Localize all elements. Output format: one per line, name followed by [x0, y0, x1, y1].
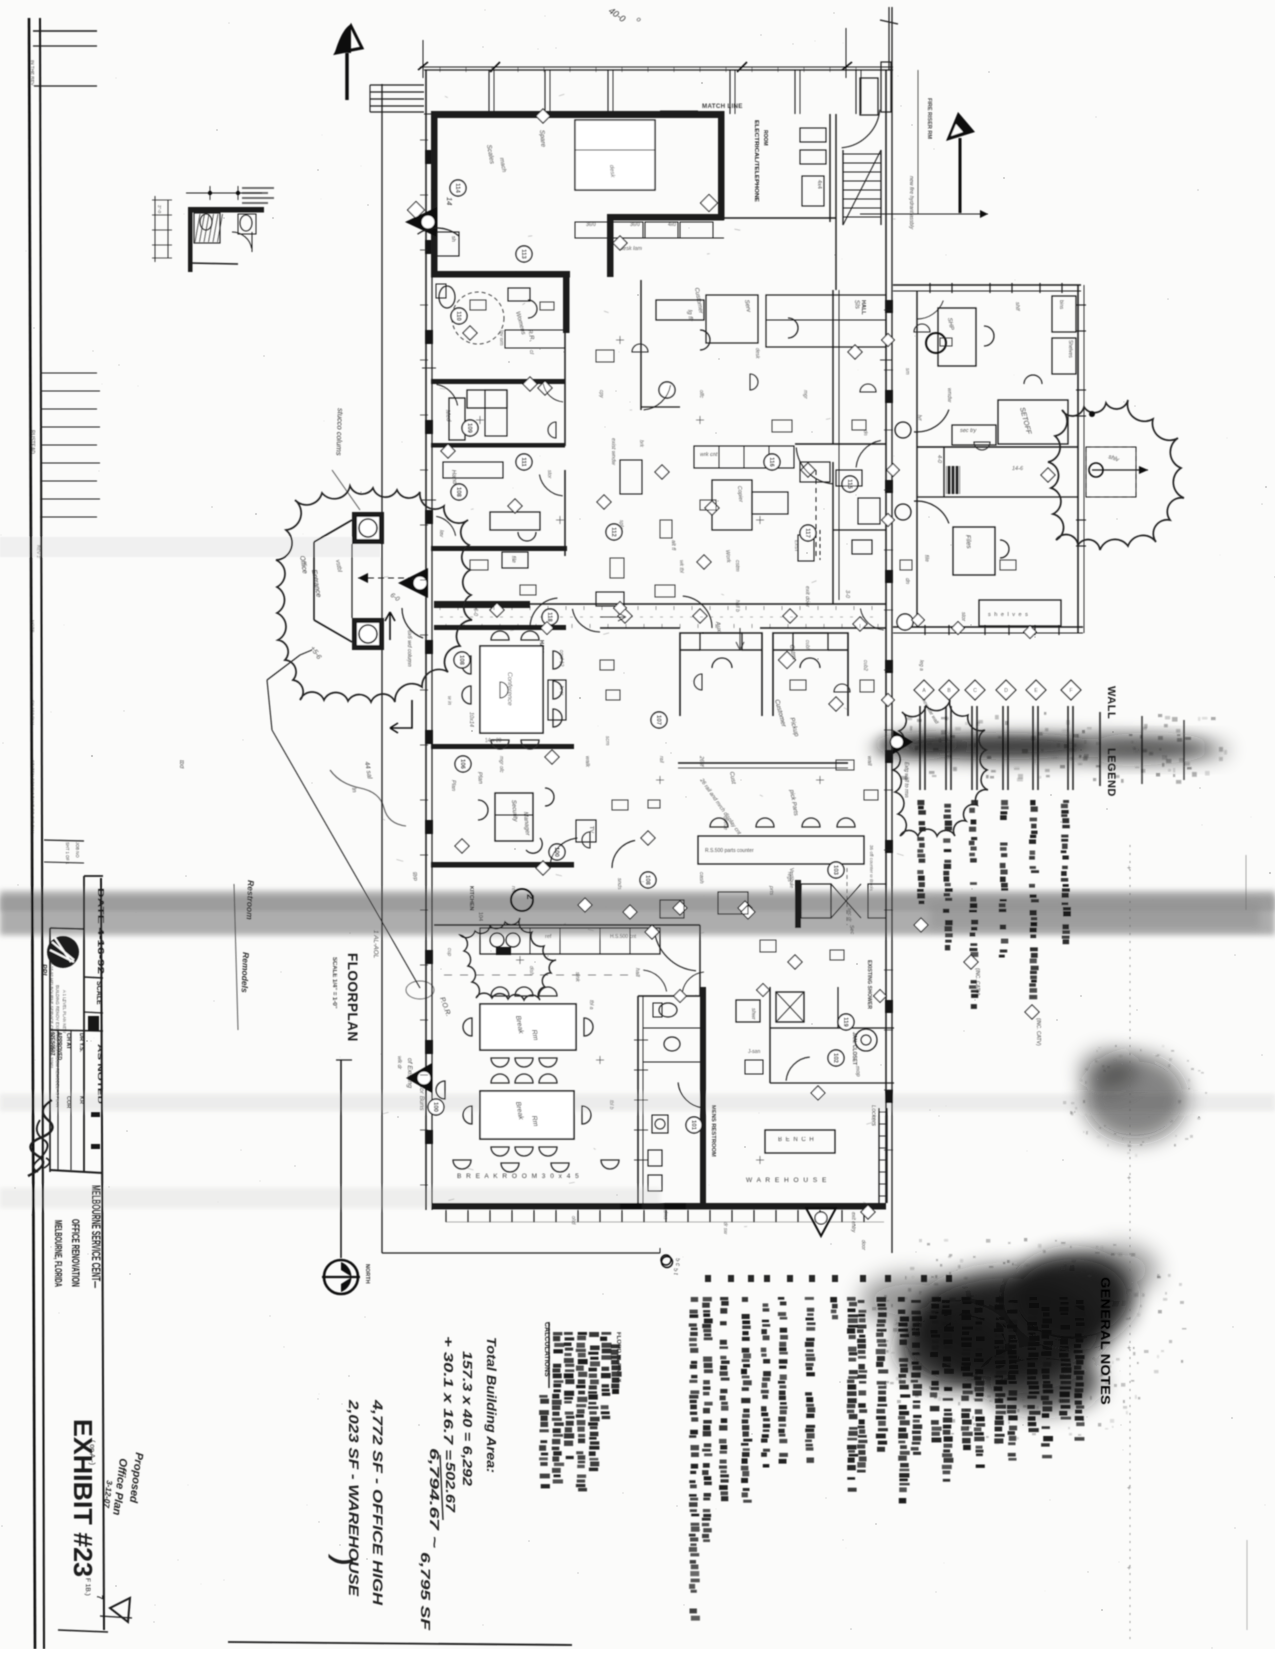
svg-text:+: +	[1127, 1175, 1131, 1182]
svg-text:MELBOURNE, FLORIDA: MELBOURNE, FLORIDA	[52, 1220, 63, 1287]
svg-text:+ 30.1 x 16.7 =: + 30.1 x 16.7 =	[441, 1336, 455, 1461]
svg-text:exit door: exit door	[804, 586, 810, 608]
svg-text:101: 101	[690, 1120, 696, 1131]
svg-text:PLAN: PLAN	[345, 1003, 360, 1042]
svg-text:new fire hydrant assbly: new fire hydrant assbly	[908, 176, 914, 229]
svg-text:115: 115	[846, 479, 852, 489]
svg-text:NOTE: NOTE	[30, 620, 35, 633]
svg-text:36/0: 36/0	[630, 222, 640, 228]
svg-text:STATEN CONSULTANT CO INC DLV: STATEN CONSULTANT CO INC DLV	[30, 760, 35, 833]
svg-text:J-san: J-san	[748, 1049, 760, 1055]
svg-text:106: 106	[459, 759, 465, 770]
svg-text:ohd: ohd	[570, 1216, 576, 1225]
svg-text:brk: brk	[638, 440, 644, 447]
svg-text:MELBOURNE SERVICE CENT—: MELBOURNE SERVICE CENT—	[89, 1185, 103, 1288]
svg-text:FIRE RISER RM: FIRE RISER RM	[926, 98, 932, 139]
svg-text:mgr ofc: mgr ofc	[498, 756, 504, 773]
svg-text:KR: KR	[78, 1096, 84, 1104]
svg-text:stor: stor	[960, 612, 966, 622]
svg-text:EXST: EXST	[794, 540, 799, 552]
svg-text:wlk dr: wlk dr	[396, 1056, 402, 1069]
svg-text:desk: desk	[608, 165, 615, 179]
svg-text:Plan: Plan	[450, 780, 456, 791]
svg-text:CK 150 DLV: CK 150 DLV	[30, 700, 35, 725]
svg-text:H.S.500 cnt: H.S.500 cnt	[610, 934, 637, 940]
svg-text:dn: dn	[904, 578, 910, 584]
svg-text:door: door	[860, 1240, 866, 1250]
svg-text:sec dr: sec dr	[846, 908, 852, 922]
svg-text:mgr: mgr	[802, 390, 808, 399]
svg-text:SCALE: SCALE	[95, 981, 102, 1005]
svg-text:36/0: 36/0	[586, 222, 596, 228]
svg-text:wrk cnt: wrk cnt	[700, 452, 718, 458]
svg-text:DATE 4-16-92: DATE 4-16-92	[96, 888, 105, 975]
svg-text:6,794.67 ~: 6,794.67 ~	[427, 1448, 442, 1549]
svg-text:36 off counter w stools: 36 off counter w stools	[869, 845, 874, 892]
svg-text:GENERAL NOTES: GENERAL NOTES	[1098, 1277, 1113, 1405]
svg-text:Med: Med	[444, 410, 451, 423]
svg-text:26 lf: 26 lf	[698, 755, 704, 767]
svg-text:F 1B.): F 1B.)	[84, 1578, 91, 1596]
svg-text:file: file	[510, 556, 517, 564]
svg-text:desk: desk	[754, 348, 760, 359]
svg-text:exit entry: exit entry	[850, 1212, 856, 1233]
svg-text:Sls: Sls	[853, 300, 861, 310]
svg-text:108: 108	[458, 655, 464, 666]
svg-text:hall b: hall b	[734, 600, 740, 612]
svg-text:shlf: shlf	[1014, 302, 1020, 311]
svg-text:Remodels: Remodels	[240, 952, 251, 993]
svg-text:ref: ref	[545, 934, 552, 940]
svg-text:14: 14	[445, 197, 454, 205]
svg-text:(INC. CATV): (INC. CATV)	[1035, 1018, 1041, 1046]
svg-text:stor: stor	[546, 470, 552, 479]
svg-text:107: 107	[655, 715, 661, 726]
svg-text:scrn: scrn	[604, 736, 610, 746]
svg-text:stucco colums: stucco colums	[334, 408, 345, 456]
svg-text:502.67: 502.67	[443, 1462, 457, 1513]
svg-text:tbl a: tbl a	[588, 1000, 594, 1010]
svg-text:PPL: PPL	[40, 964, 47, 978]
svg-text:sply: sply	[618, 520, 624, 529]
svg-text:+: +	[1127, 1345, 1131, 1352]
svg-text:COR: COR	[65, 1096, 71, 1108]
svg-text:3"-0: 3"-0	[157, 205, 162, 214]
svg-text:(INC. CATV): (INC. CATV)	[974, 968, 980, 996]
svg-text:of Existing: of Existing	[406, 1058, 413, 1088]
svg-text:sh: sh	[450, 236, 456, 242]
svg-text:IN THE REV: IN THE REV	[30, 60, 35, 87]
svg-text:file: file	[923, 555, 930, 563]
svg-text:NORTH: NORTH	[364, 1264, 370, 1284]
svg-text:112: 112	[610, 527, 616, 537]
svg-text:2: 2	[524, 894, 535, 900]
svg-text:114: 114	[454, 183, 460, 193]
svg-text:14 x 20: 14 x 20	[485, 738, 502, 744]
svg-text:102: 102	[832, 1053, 838, 1064]
svg-text:cup: cup	[446, 948, 452, 956]
svg-text:tbd: tbd	[178, 760, 184, 769]
svg-text:+: +	[1127, 865, 1131, 872]
svg-text:Shelves: Shelves	[1067, 340, 1073, 358]
svg-text:W A R E H O U S E: W A R E H O U S E	[746, 1177, 828, 1184]
svg-text:SCALE 1/4" = 1-0": SCALE 1/4" = 1-0"	[331, 957, 337, 1009]
svg-text:14-6: 14-6	[1012, 466, 1024, 472]
svg-text:111: 111	[520, 457, 526, 467]
svg-text:ROOM: ROOM	[762, 130, 768, 146]
svg-text:108: 108	[455, 487, 461, 498]
svg-text:6,795 SF: 6,795 SF	[418, 1552, 433, 1632]
svg-text:queue: queue	[722, 816, 728, 830]
svg-text:109: 109	[466, 423, 472, 434]
svg-text:conf 12: conf 12	[558, 650, 564, 667]
svg-text:Work: Work	[724, 550, 731, 564]
svg-text:113: 113	[520, 249, 526, 259]
svg-text:Conference: Conference	[506, 672, 513, 706]
svg-text:4x0: 4x0	[668, 222, 676, 228]
svg-text:AS NOTED: AS NOTED	[96, 1044, 103, 1105]
svg-text:exist wndw: exist wndw	[610, 438, 616, 466]
svg-text:REV 2: REV 2	[36, 545, 41, 559]
svg-text:116: 116	[768, 457, 774, 467]
svg-text:B R E A K R O O M 3 0 x 4 5: B R E A K R O O M 3 0 x 4 5	[457, 1173, 580, 1180]
svg-text:wndw: wndw	[946, 388, 952, 403]
svg-text:w in: w in	[446, 696, 452, 705]
svg-text:APPROVED: APPROVED	[56, 1032, 62, 1060]
svg-text:100: 100	[432, 1102, 438, 1113]
svg-text:157.3 x 40 = 6,292: 157.3 x 40 = 6,292	[460, 1351, 474, 1486]
svg-text:10x14: 10x14	[468, 712, 474, 727]
svg-text:3-0: 3-0	[844, 590, 850, 599]
svg-text:MENS RESTROOM: MENS RESTROOM	[710, 1105, 716, 1157]
svg-text:Files: Files	[964, 535, 972, 550]
svg-text:shwr: shwr	[750, 1008, 756, 1021]
svg-text:wk tbl: wk tbl	[678, 560, 684, 574]
svg-text:sec try: sec try	[960, 428, 977, 434]
svg-text:1 AL-AOL: 1 AL-AOL	[372, 930, 379, 959]
svg-text:sm: sm	[904, 368, 910, 375]
svg-text:108: 108	[644, 875, 650, 886]
svg-text:dish: dish	[528, 966, 534, 975]
svg-text:( on A.-): ( on A.-)	[88, 1440, 95, 1465]
svg-text:5 t: 5 t	[672, 1268, 678, 1275]
svg-text:OFFICE RENOVATION: OFFICE RENOVATION	[69, 1219, 81, 1287]
svg-text:cub2: cub2	[862, 660, 868, 671]
svg-text:hall: hall	[634, 968, 640, 977]
svg-text:wall: wall	[866, 756, 872, 766]
svg-text:snds: snds	[616, 878, 622, 890]
svg-text:Extg wall to rmn: Extg wall to rmn	[903, 762, 909, 798]
svg-text:Sec: Sec	[848, 925, 855, 935]
svg-text:C: C	[973, 688, 977, 694]
svg-text:A 1 LEVEL PLAN NEW: A 1 LEVEL PLAN NEW	[62, 990, 67, 1033]
svg-text:ELECTRICAL/TELEPHONE: ELECTRICAL/TELEPHONE	[753, 120, 759, 203]
svg-text:tbl b: tbl b	[608, 1100, 614, 1110]
svg-text:cpy: cpy	[598, 390, 604, 398]
svg-text:DR Y.S.: DR Y.S.	[78, 1033, 84, 1053]
svg-text:dr sw: dr sw	[722, 1222, 728, 1234]
svg-text:D: D	[1004, 688, 1008, 694]
svg-text:92ES0507: 92ES0507	[49, 1032, 55, 1056]
svg-text:bins: bins	[1058, 300, 1064, 310]
svg-text:FLOOR: FLOOR	[345, 953, 360, 1003]
svg-text:104: 104	[477, 912, 483, 921]
svg-text:leg a: leg a	[918, 660, 924, 671]
svg-text:4,772 SF - OFFICE HIGH: 4,772 SF - OFFICE HIGH	[370, 1399, 386, 1606]
svg-text:4-0: 4-0	[936, 455, 942, 464]
svg-text:gyp: gyp	[412, 872, 418, 881]
svg-text:119: 119	[842, 1017, 848, 1027]
svg-text:RUSTEAD: RUSTEAD	[29, 430, 35, 454]
svg-text:JOB NO: JOB NO	[75, 842, 80, 858]
svg-text:walk: walk	[584, 756, 590, 767]
svg-text:4x4: 4x4	[816, 180, 822, 189]
svg-text:alt fl: alt fl	[670, 540, 676, 551]
svg-text:Plan: Plan	[476, 772, 483, 785]
svg-text:CH AT: CH AT	[65, 1033, 71, 1050]
svg-text:rail: rail	[658, 756, 664, 764]
svg-text:WALL: WALL	[1105, 686, 1117, 719]
svg-text:dms: dms	[662, 1210, 668, 1220]
svg-text:110: 110	[455, 311, 461, 321]
svg-text:offc: offc	[698, 390, 704, 399]
svg-text:s h e l v e s: s h e l v e s	[988, 612, 1029, 618]
svg-text:tv cr: tv cr	[558, 686, 564, 696]
svg-text:F: F	[1069, 688, 1072, 694]
svg-text:+: +	[1127, 1565, 1131, 1572]
svg-text:Total Building Area:: Total Building Area:	[484, 1337, 499, 1473]
svg-text:FLOOD PLAINS X: FLOOD PLAINS X	[615, 1332, 621, 1382]
svg-text:117: 117	[804, 528, 810, 538]
svg-text:2,023 SF - WAREHOUSE: 2,023 SF - WAREHOUSE	[346, 1399, 362, 1597]
svg-text:regs: regs	[786, 872, 792, 882]
svg-text:lav wm: lav wm	[498, 330, 504, 346]
svg-text:5 c: 5 c	[674, 1258, 680, 1266]
svg-text:+: +	[1127, 1485, 1131, 1492]
svg-text:R.S.500 parts counter: R.S.500 parts counter	[705, 848, 754, 854]
svg-text:dn: dn	[862, 430, 868, 436]
svg-text:cubl: cubl	[804, 640, 810, 650]
svg-text:sink: sink	[574, 972, 580, 982]
svg-text:ref: ref	[510, 886, 516, 893]
svg-text:EXISTING SHOWER: EXISTING SHOWER	[866, 960, 872, 1009]
svg-text:B E N C H: B E N C H	[778, 1137, 815, 1143]
svg-text:KITCHEN: KITCHEN	[468, 886, 474, 910]
svg-text:mop: mop	[854, 1066, 861, 1077]
svg-text:HALL: HALL	[860, 300, 866, 315]
svg-text:SHT 1 OF 1: SHT 1 OF 1	[65, 842, 70, 865]
svg-text:7: 7	[95, 1595, 104, 1600]
svg-text:cstm: cstm	[734, 560, 740, 572]
svg-text:Restroom: Restroom	[245, 880, 256, 920]
svg-text:cash: cash	[698, 872, 704, 884]
svg-text:MATCH LINE: MATCH LINE	[702, 103, 743, 110]
svg-text:prts: prts	[768, 885, 774, 895]
svg-text:103: 103	[832, 865, 838, 876]
svg-text:6-0: 6-0	[472, 608, 478, 617]
